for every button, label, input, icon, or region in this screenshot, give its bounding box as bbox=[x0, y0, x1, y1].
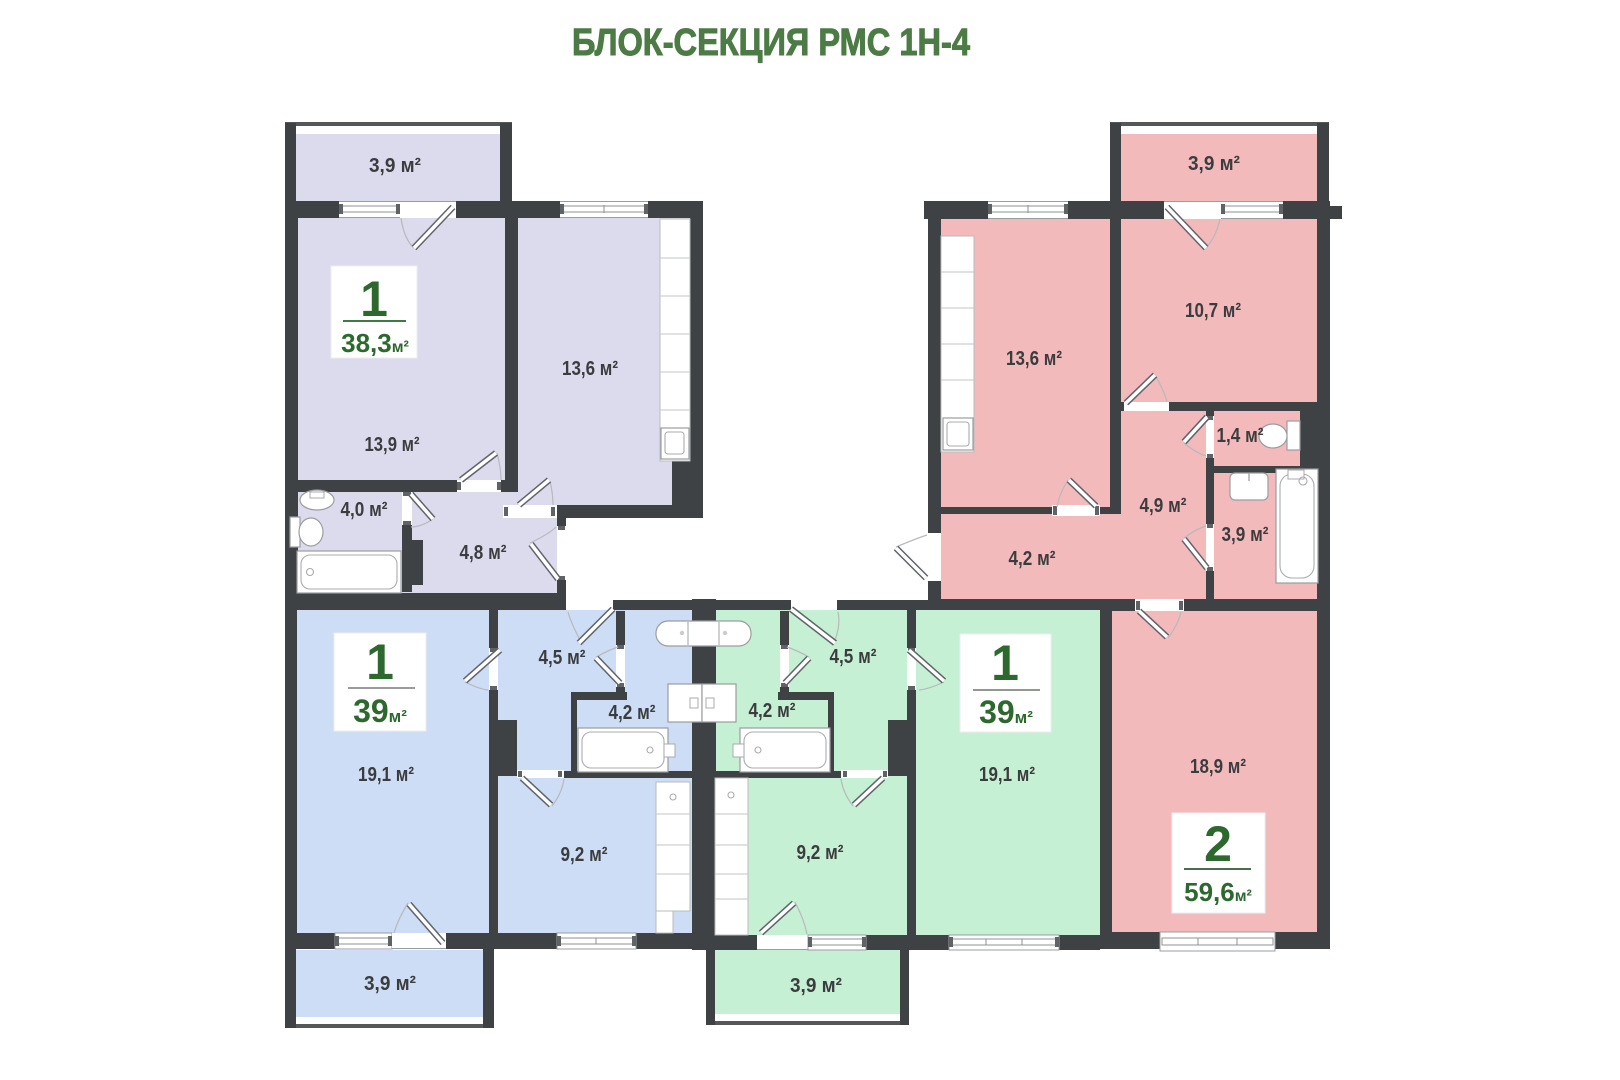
svg-text:13,9 м²: 13,9 м² bbox=[365, 433, 420, 456]
svg-text:1: 1 bbox=[991, 635, 1019, 691]
svg-text:4,2 м²: 4,2 м² bbox=[1009, 547, 1056, 570]
svg-text:19,1 м²: 19,1 м² bbox=[979, 763, 1035, 786]
svg-text:4,0 м²: 4,0 м² bbox=[341, 498, 388, 521]
svg-text:3,9 м²: 3,9 м² bbox=[1188, 152, 1240, 175]
svg-text:3,9 м²: 3,9 м² bbox=[790, 974, 842, 997]
svg-text:3,9 м²: 3,9 м² bbox=[364, 972, 416, 995]
svg-text:2: 2 bbox=[1204, 816, 1232, 872]
svg-text:3,9 м²: 3,9 м² bbox=[369, 154, 421, 177]
svg-text:4,2 м²: 4,2 м² bbox=[749, 699, 796, 722]
svg-text:3,9 м²: 3,9 м² bbox=[1222, 523, 1269, 546]
svg-text:18,9 м²: 18,9 м² bbox=[1190, 755, 1246, 778]
svg-text:4,2 м²: 4,2 м² bbox=[609, 701, 656, 724]
svg-text:БЛОК-СЕКЦИЯ РМС 1Н-4: БЛОК-СЕКЦИЯ РМС 1Н-4 bbox=[572, 22, 970, 64]
svg-text:19,1 м²: 19,1 м² bbox=[358, 763, 414, 786]
svg-text:1,4 м²: 1,4 м² bbox=[1217, 424, 1264, 447]
svg-text:1: 1 bbox=[366, 634, 394, 690]
svg-text:4,5 м²: 4,5 м² bbox=[830, 645, 877, 668]
svg-text:4,8 м²: 4,8 м² bbox=[460, 541, 507, 564]
svg-text:9,2 м²: 9,2 м² bbox=[797, 841, 844, 864]
svg-text:4,9 м²: 4,9 м² bbox=[1140, 494, 1187, 517]
svg-text:13,6 м²: 13,6 м² bbox=[562, 357, 618, 380]
svg-text:1: 1 bbox=[360, 271, 388, 327]
svg-text:10,7 м²: 10,7 м² bbox=[1185, 299, 1241, 322]
svg-text:13,6 м²: 13,6 м² bbox=[1006, 347, 1062, 370]
svg-text:4,5 м²: 4,5 м² bbox=[539, 646, 586, 669]
svg-text:9,2 м²: 9,2 м² bbox=[561, 843, 608, 866]
